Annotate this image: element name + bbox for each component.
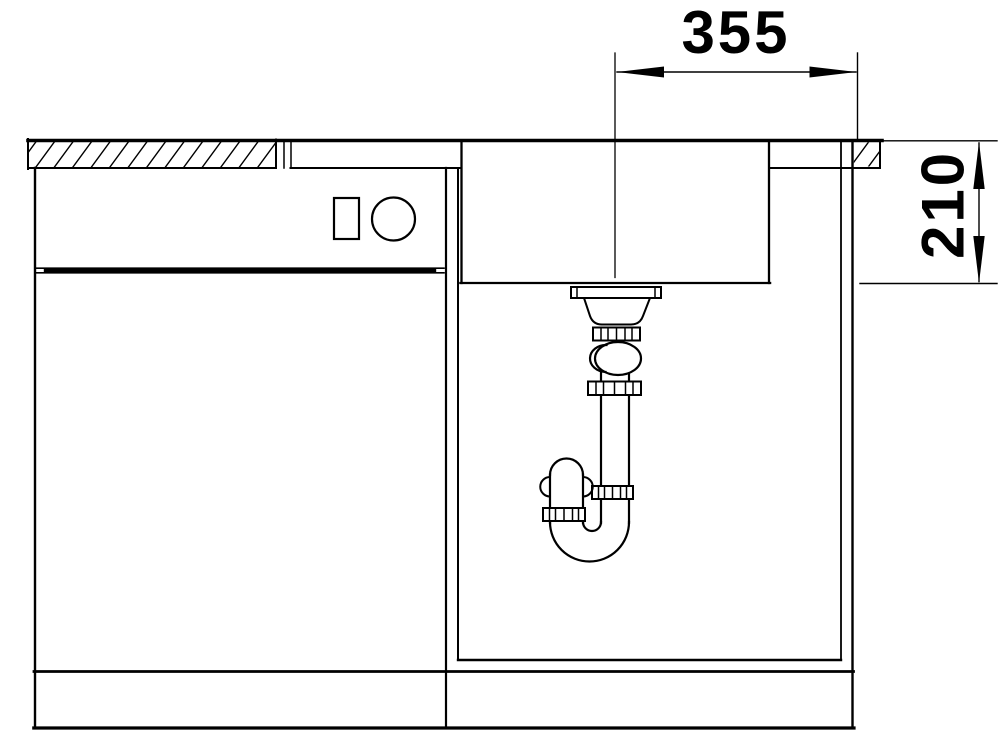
drawing-canvas: 355 210 <box>0 0 1000 735</box>
strainer-flange <box>571 287 661 298</box>
dimension-width-arrow-right <box>810 67 857 78</box>
trap-bend-inner <box>583 522 601 531</box>
section-hatch-left <box>16 139 297 169</box>
control-knob <box>372 198 415 241</box>
dimension-width-label: 355 <box>681 0 790 66</box>
technical-drawing: 355 210 <box>0 0 1000 735</box>
trap-bend-outer <box>550 522 629 562</box>
ball-joint-elbow <box>595 342 641 375</box>
countertop <box>16 136 891 170</box>
drain-strainer <box>571 287 661 341</box>
cabinet-right <box>446 142 853 728</box>
strainer-funnel <box>584 298 650 325</box>
outlet-joint-left-lug <box>540 477 550 497</box>
plinth <box>34 672 854 729</box>
control-rectangle <box>334 198 359 239</box>
dimension-width: 355 <box>617 0 858 139</box>
dimension-width-arrow-left <box>617 67 664 78</box>
cabinet-left <box>35 168 444 728</box>
trap-riser-dome-cap <box>550 459 583 475</box>
countertop-seam-lines <box>284 140 291 168</box>
dimension-depth-label: 210 <box>910 150 977 259</box>
siphon-trap <box>540 342 641 562</box>
